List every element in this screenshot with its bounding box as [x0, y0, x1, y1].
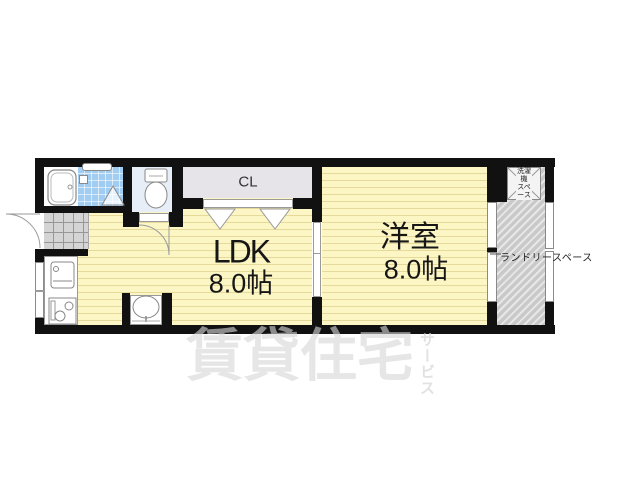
wall-toilet-bottom-left	[132, 212, 139, 227]
sliding-door-ldk-western	[313, 222, 321, 297]
wall-toilet-bottom-right	[169, 212, 172, 227]
toilet-room-floor	[132, 167, 172, 212]
washing-machine-space-label-line1: 洗濯機	[517, 168, 531, 184]
sliding-door-divider	[313, 253, 321, 254]
wall-left-upper	[35, 158, 44, 213]
entrance-tile-floor	[44, 213, 88, 249]
laundry-space-label: ランドリースペース	[500, 249, 593, 264]
wall-closet-bottom-left	[183, 198, 203, 209]
closet-folding-door-track	[203, 199, 293, 208]
wall-laundry-col-bottom	[487, 302, 497, 334]
wall-entrance-stub	[35, 249, 88, 256]
western-room-size: 8.0帖	[384, 248, 449, 287]
washing-machine-space-label-line2: スペース	[517, 184, 531, 200]
wall-left-lower	[35, 318, 44, 334]
watermark-subtext: サービス	[419, 332, 434, 396]
wall-right-lower	[545, 302, 554, 334]
ldk-room-size: 8.0帖	[209, 262, 274, 301]
wall-divider-upper	[312, 158, 322, 222]
bathroom-floor	[44, 167, 79, 206]
wall-toilet-right	[172, 158, 183, 227]
toilet-door	[139, 213, 169, 222]
watermark-text: 賃貸住宅	[186, 328, 414, 385]
western-laundry-window-lower	[487, 252, 497, 302]
entrance-door-opening	[35, 213, 44, 249]
closet-label: CL	[238, 174, 257, 191]
wall-closet-bottom-right	[293, 198, 312, 209]
kitchen-counter	[44, 256, 78, 325]
entrance-step-line	[88, 213, 89, 249]
laundry-outer-window-upper	[545, 202, 554, 249]
western-laundry-window-upper	[487, 202, 497, 248]
wall-top	[35, 158, 555, 167]
kitchen-window-divider	[35, 290, 44, 292]
shower-mirror	[79, 175, 88, 184]
wall-basin-stub-right	[162, 293, 172, 325]
wall-bath-bottom	[35, 206, 123, 213]
wall-laundry-corner	[487, 158, 507, 202]
wall-right-upper	[545, 158, 554, 202]
wall-basin-stub-left	[122, 293, 130, 325]
floor-plan: 洗濯機 スペース	[0, 0, 640, 480]
bath-vent-window	[82, 163, 112, 171]
wall-toilet-left	[123, 158, 132, 227]
washing-machine-space-box: 洗濯機 スペース	[507, 167, 541, 200]
shower-tile-floor	[78, 167, 123, 206]
washbasin-unit	[130, 295, 162, 325]
